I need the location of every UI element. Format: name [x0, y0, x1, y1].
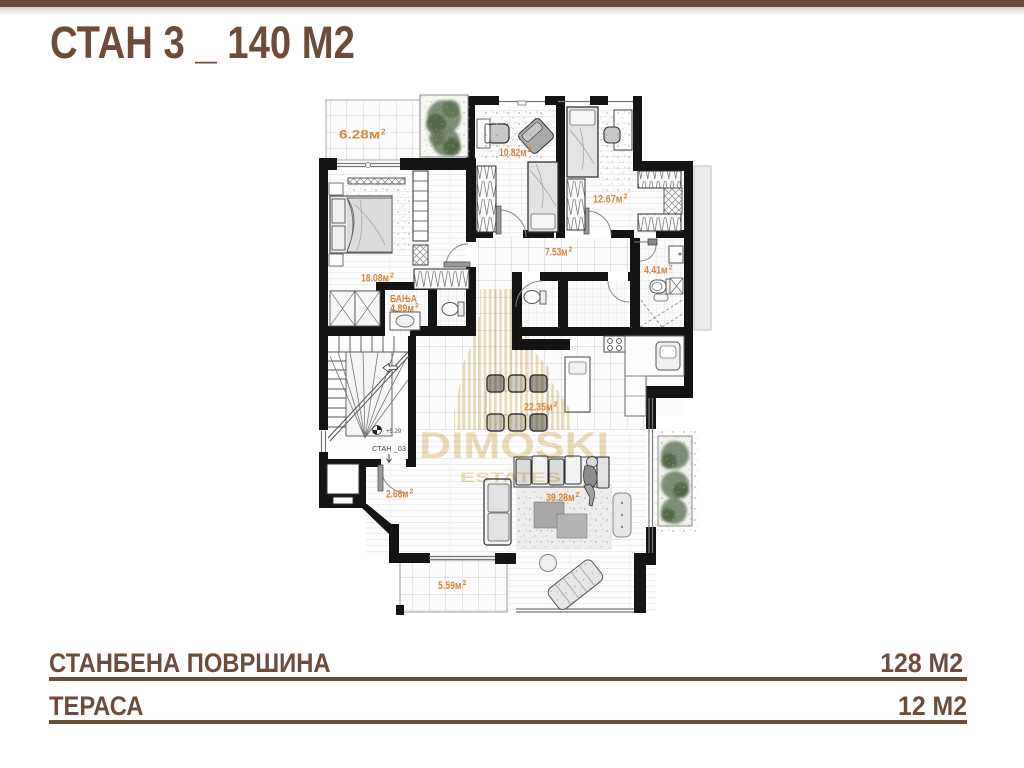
svg-text:2: 2 — [390, 273, 394, 280]
svg-text:2: 2 — [569, 247, 573, 254]
svg-text:ESTATES: ESTATES — [460, 470, 561, 485]
svg-text:10.82м: 10.82м — [499, 147, 527, 159]
svg-text:39.28м: 39.28м — [546, 492, 575, 504]
svg-text:2: 2 — [669, 265, 673, 272]
svg-text:2: 2 — [463, 580, 467, 587]
svg-text:2: 2 — [415, 303, 419, 310]
svg-text:7.53м: 7.53м — [545, 247, 568, 259]
svg-text:12.67м: 12.67м — [593, 194, 623, 206]
svg-text:+5.29: +5.29 — [386, 429, 402, 435]
svg-text:2.68м: 2.68м — [386, 489, 409, 501]
svg-text:2: 2 — [528, 147, 532, 154]
svg-text:СТАН _03: СТАН _03 — [372, 444, 406, 453]
svg-text:2: 2 — [624, 194, 628, 201]
svg-text:2: 2 — [576, 492, 580, 499]
svg-text:2: 2 — [410, 489, 414, 496]
svg-text:2: 2 — [381, 128, 386, 137]
svg-text:2: 2 — [554, 402, 558, 409]
svg-text:DIMOSKI: DIMOSKI — [419, 425, 609, 466]
svg-text:6.28м: 6.28м — [339, 128, 380, 142]
svg-text:18.08м: 18.08м — [361, 273, 389, 285]
svg-text:4.41м: 4.41м — [644, 265, 668, 277]
svg-text:5.59м: 5.59м — [438, 580, 462, 592]
svg-text:22.35м: 22.35м — [524, 402, 553, 414]
svg-text:4.89м: 4.89м — [390, 304, 414, 315]
